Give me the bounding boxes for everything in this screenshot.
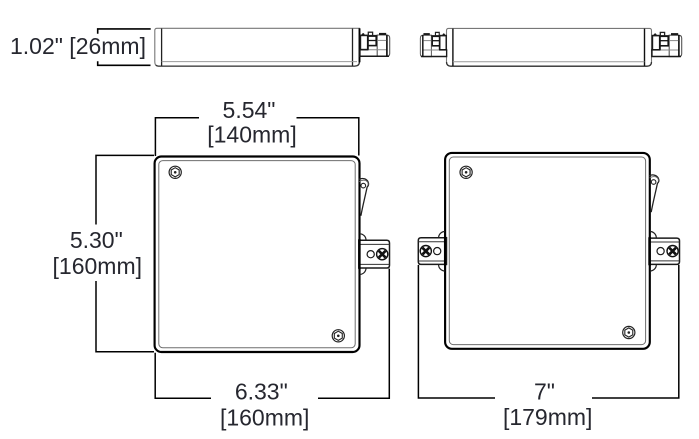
- svg-text:[140mm]: [140mm]: [207, 122, 296, 148]
- svg-text:5.30": 5.30": [70, 227, 123, 253]
- svg-text:5.54": 5.54": [223, 97, 276, 123]
- svg-text:7": 7": [534, 379, 555, 405]
- svg-text:1.02" [26mm]: 1.02" [26mm]: [10, 33, 146, 59]
- svg-text:6.33": 6.33": [235, 379, 288, 405]
- svg-text:[160mm]: [160mm]: [53, 253, 142, 279]
- svg-text:[160mm]: [160mm]: [220, 405, 309, 431]
- svg-text:[179mm]: [179mm]: [503, 404, 592, 430]
